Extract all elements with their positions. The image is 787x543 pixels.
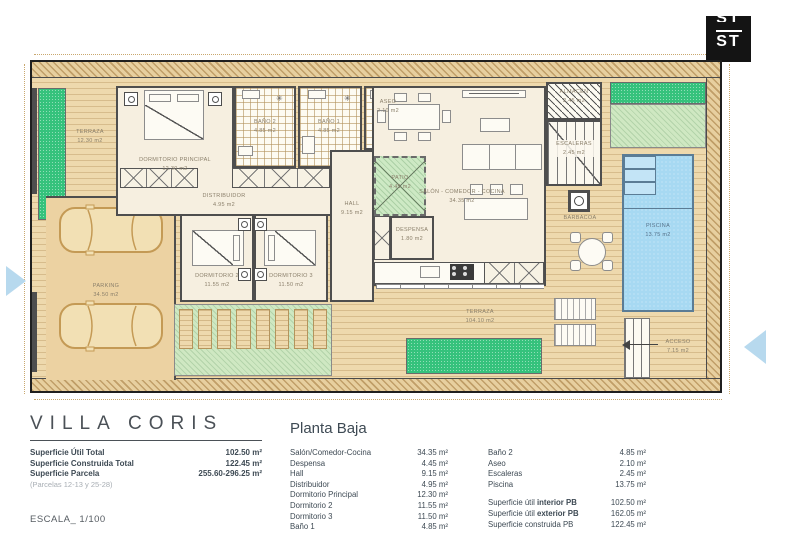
sink-icon <box>242 90 260 99</box>
room-name: PARKING <box>93 283 119 289</box>
room-label-piscina: PISCINA 13.75 m2 <box>645 222 670 239</box>
legend-row: Dormitorio 211.55 m² <box>290 501 448 512</box>
legend-value: 4.85 m² <box>620 448 646 459</box>
room-area: 34.50 m2 <box>93 292 118 298</box>
room-name: TERRAZA <box>76 129 104 135</box>
pillow <box>233 235 240 261</box>
room-name: BARBACOA <box>564 215 597 221</box>
pillow <box>177 94 199 102</box>
chair <box>418 132 431 141</box>
legend-value: 11.50 m² <box>418 512 448 523</box>
room-label-acceso: ACCESO 7.15 m2 <box>665 338 690 355</box>
room-label-salon: SALÓN - COMEDOR - COCINA 34.35 m2 <box>419 188 505 205</box>
title-block: VILLA CORIS Superficie Útil Total 102.50… <box>30 413 262 490</box>
legend-total-value: 102.50 m² <box>611 498 646 509</box>
parcelas-note: (Parcelas 12-13 y 25-28) <box>30 480 262 491</box>
room-hall <box>330 150 374 302</box>
chair <box>602 260 613 271</box>
bed-icon <box>192 230 244 266</box>
pool-line <box>624 208 692 209</box>
legend-row: Distribuidor4.95 m² <box>290 480 448 491</box>
legend-label: Escaleras <box>488 469 522 480</box>
entrance-arrow-right-icon <box>6 266 26 296</box>
room-name: TERRAZA <box>466 309 494 315</box>
legend-column-2: Baño 24.85 m² Aseo2.10 m² Escaleras2.45 … <box>488 448 646 530</box>
wall-segment <box>32 292 37 372</box>
room-label-barbacoa: BARBACOA <box>564 214 597 223</box>
summary-row: Superficie Parcela 255.60-296.25 m² <box>30 469 262 480</box>
room-name: ALMACÉN <box>560 89 589 95</box>
room-area: 1.80 m2 <box>401 236 423 242</box>
summary-row: Superficie Construida Total 122.45 m² <box>30 459 262 470</box>
pergola-slat <box>313 309 327 349</box>
room-name: DORMITORIO 3 <box>269 273 313 279</box>
stool <box>510 184 523 195</box>
room-area: 2.45 m2 <box>563 98 585 104</box>
legend-row: Despensa4.45 m² <box>290 459 448 470</box>
room-label-almacen: ALMACÉN 2.45 m2 <box>560 88 589 105</box>
room-area: 12.30 m2 <box>77 138 102 144</box>
logo-bottom-text: ST <box>716 33 740 51</box>
logo-top-text: ST <box>716 9 740 22</box>
sofa-seam <box>515 145 516 169</box>
site-border-top <box>32 62 720 78</box>
chair <box>570 232 581 243</box>
room-label-escaleras: ESCALERAS 2.45 m2 <box>554 140 594 157</box>
pergola-garden <box>174 304 332 376</box>
pillow <box>268 235 275 261</box>
pool-steps <box>624 156 656 169</box>
room-area: 104.10 m2 <box>466 318 495 324</box>
shower-icon: ✳ <box>344 94 351 103</box>
legend-value: 12.30 m² <box>417 490 448 501</box>
pergola-slat <box>217 309 231 349</box>
room-label-terraza-main: TERRAZA 104.10 m2 <box>466 308 495 325</box>
dimension-line-right <box>729 64 730 394</box>
room-label-dormitorio2: DORMITORIO 2 11.55 m2 <box>195 272 239 289</box>
garden-strip-south <box>406 338 542 374</box>
legend-total-value: 162.05 m² <box>611 509 646 520</box>
legend-label: Distribuidor <box>290 480 329 491</box>
st-logo: ST ST <box>706 16 751 62</box>
toilet-icon <box>302 136 315 154</box>
legend-row: Escaleras2.45 m² <box>488 469 646 480</box>
summary-value: 102.50 m² <box>226 448 262 459</box>
legend-label: Hall <box>290 469 303 480</box>
floor-plan: TERRAZA 12.30 m2 PARKING 34.50 m2 <box>30 60 722 393</box>
summary-row: Superficie Útil Total 102.50 m² <box>30 448 262 459</box>
pergola-slat <box>179 309 193 349</box>
legend-row: Piscina13.75 m² <box>488 480 646 491</box>
legend-label: Baño 1 <box>290 522 315 533</box>
section-marker <box>238 218 251 231</box>
chair <box>394 132 407 141</box>
page: ST ST TERRAZA 12.30 m2 <box>0 0 787 543</box>
garden-light-ne <box>610 104 706 148</box>
room-name: DESPENSA <box>396 227 428 233</box>
wardrobe <box>232 168 330 188</box>
room-name: ACCESO <box>665 339 690 345</box>
bed-fold <box>145 105 203 139</box>
legend-total-value: 122.45 m² <box>611 520 646 531</box>
pergola-slat <box>275 309 289 349</box>
room-label-hall: HALL 9.15 m2 <box>341 200 363 217</box>
room-name: DORMITORIO 2 <box>195 273 239 279</box>
wall-segment <box>32 88 37 194</box>
room-label-bano1: BAÑO 1 4.85 m2 <box>318 118 340 135</box>
legend-value: 34.35 m² <box>417 448 448 459</box>
sofa-icon <box>462 144 542 170</box>
legend-label: Dormitorio Principal <box>290 490 358 501</box>
summary-label: Superficie Parcela <box>30 469 99 480</box>
stove-icon <box>450 264 474 280</box>
legend-total-label: Superficie construida PB <box>488 520 573 531</box>
wardrobe <box>374 216 390 260</box>
legend-total-row: Superficie útil interior PB 102.50 m² <box>488 498 646 509</box>
legend-value: 2.10 m² <box>620 459 646 470</box>
scale-text: ESCALA_ 1/100 <box>30 514 106 525</box>
pergola-slat <box>256 309 270 349</box>
legend-label: Dormitorio 2 <box>290 501 332 512</box>
room-area: 12.30 m2 <box>162 166 187 172</box>
room-name: BAÑO 1 <box>318 119 340 125</box>
legend-row: Baño 14.85 m² <box>290 522 448 533</box>
legend-value: 4.85 m² <box>422 522 448 533</box>
title-rule <box>30 440 262 441</box>
room-area: 13.75 m2 <box>645 232 670 238</box>
room-area: 4.95 m2 <box>213 202 235 208</box>
total-bold: interior PB <box>537 498 577 507</box>
summary-value: 255.60-296.25 m² <box>198 469 262 480</box>
room-area: 9.15 m2 <box>341 210 363 216</box>
section-marker <box>254 268 267 281</box>
pool-steps <box>624 169 656 182</box>
legend-row: Dormitorio Principal12.30 m² <box>290 490 448 501</box>
room-label-dormitorio-principal: DORMITORIO PRINCIPAL 12.30 m2 <box>139 156 211 173</box>
legend-row: Aseo2.10 m² <box>488 459 646 470</box>
room-label-parking: PARKING 34.50 m2 <box>93 282 119 299</box>
room-area: 7.15 m2 <box>667 348 689 354</box>
garden-strip-ne <box>610 82 706 104</box>
room-name: HALL <box>345 201 360 207</box>
glass-wall <box>376 284 544 289</box>
bed-fold <box>275 231 315 265</box>
lounger-icon <box>554 298 596 320</box>
barbecue-icon <box>568 190 590 212</box>
legend-label: Baño 2 <box>488 448 513 459</box>
legend-label: Aseo <box>488 459 506 470</box>
sofa-seam <box>489 145 490 169</box>
pillow <box>149 94 171 102</box>
legend-value: 13.75 m² <box>615 480 646 491</box>
legend-total-row: Superficie útil exterior PB 162.05 m² <box>488 509 646 520</box>
room-label-bano2: BAÑO 2 4.85 m2 <box>254 118 276 135</box>
pool-steps <box>624 182 656 195</box>
room-name: BAÑO 2 <box>254 119 276 125</box>
room-label-dormitorio3: DORMITORIO 3 11.50 m2 <box>269 272 313 289</box>
total-prefix: Superficie útil <box>488 498 537 507</box>
room-label-despensa: DESPENSA 1.80 m2 <box>396 226 428 243</box>
dimension-line-left <box>24 64 25 394</box>
car-icon <box>58 300 164 352</box>
bed-icon <box>144 90 204 140</box>
shower-icon: ✳ <box>276 94 283 103</box>
total-prefix: Superficie útil <box>488 509 537 518</box>
room-label-patio: PATIO 4.45 m2 <box>389 174 411 191</box>
legend-row: Salón/Comedor-Cocina34.35 m² <box>290 448 448 459</box>
legend-row: Hall9.15 m² <box>290 469 448 480</box>
pergola-slat <box>294 309 308 349</box>
room-label-distribuidor: DISTRIBUIDOR 4.95 m2 <box>202 192 245 209</box>
dimension-line-top <box>34 54 722 55</box>
legend-label: Dormitorio 3 <box>290 512 332 523</box>
toilet-icon <box>238 146 253 156</box>
round-table-icon <box>578 238 606 266</box>
chair <box>570 260 581 271</box>
room-label-terraza-nw: TERRAZA 12.30 m2 <box>76 128 104 145</box>
site-border-right <box>706 78 720 378</box>
room-name: ASEO <box>380 99 396 105</box>
pergola-slat <box>198 309 212 349</box>
room-area: 34.35 m2 <box>449 198 474 204</box>
legend-row: Baño 24.85 m² <box>488 448 646 459</box>
section-marker <box>124 92 138 106</box>
legend-total-row: Superficie construida PB 122.45 m² <box>488 520 646 531</box>
legend-row: Dormitorio 311.50 m² <box>290 512 448 523</box>
summary-label: Superficie Útil Total <box>30 448 105 459</box>
legend-value: 4.45 m² <box>422 459 448 470</box>
legend-label: Piscina <box>488 480 513 491</box>
section-marker <box>238 268 251 281</box>
entrance-arrow-left-icon <box>744 330 766 364</box>
bed-fold <box>193 231 233 265</box>
room-name: SALÓN - COMEDOR - COCINA <box>419 189 505 195</box>
room-area: 11.50 m2 <box>279 282 304 288</box>
legend-label: Despensa <box>290 459 325 470</box>
room-area: 4.85 m2 <box>254 128 276 134</box>
summary-value: 122.45 m² <box>226 459 262 470</box>
room-area: 4.45 m2 <box>389 184 411 190</box>
room-name: PISCINA <box>646 223 670 229</box>
section-marker <box>254 218 267 231</box>
room-area: 4.85 m2 <box>318 128 340 134</box>
chair <box>602 232 613 243</box>
dimension-line-bottom <box>34 399 722 400</box>
coffee-table-icon <box>480 118 510 132</box>
legend-value: 4.95 m² <box>422 480 448 491</box>
kitchen-sink-icon <box>420 266 440 278</box>
total-bold: exterior PB <box>537 509 579 518</box>
legend-value: 11.55 m² <box>418 501 448 512</box>
pergola-slat <box>236 309 250 349</box>
legend-total-label: Superficie útil exterior PB <box>488 509 579 520</box>
logo-divider <box>716 30 742 32</box>
room-area: 2.10 m2 <box>377 108 399 114</box>
lounger-icon <box>554 324 596 346</box>
legend-total-label: Superficie útil interior PB <box>488 498 577 509</box>
acceso-arrow-head <box>622 340 630 350</box>
legend-totals: Superficie útil interior PB 102.50 m² Su… <box>488 498 646 530</box>
tv-sideboard-icon <box>462 90 526 98</box>
room-name: DORMITORIO PRINCIPAL <box>139 157 211 163</box>
total-prefix: Superficie construida PB <box>488 520 573 529</box>
acceso-arrow-line <box>628 344 658 345</box>
project-title: VILLA CORIS <box>30 413 262 435</box>
legend-value: 2.45 m² <box>620 469 646 480</box>
bed-icon <box>264 230 316 266</box>
room-name: PATIO <box>391 175 408 181</box>
room-area: 11.55 m2 <box>205 282 230 288</box>
legend-value: 9.15 m² <box>422 469 448 480</box>
room-name: ESCALERAS <box>556 141 592 147</box>
room-label-aseo: ASEO 2.10 m2 <box>377 98 399 115</box>
room-area: 2.45 m2 <box>563 150 585 156</box>
chair <box>418 93 431 102</box>
legend-label: Salón/Comedor-Cocina <box>290 448 371 459</box>
legend-column-1: Salón/Comedor-Cocina34.35 m² Despensa4.4… <box>290 448 448 533</box>
chair <box>442 110 451 123</box>
room-name: DISTRIBUIDOR <box>202 193 245 199</box>
summary-label: Superficie Construida Total <box>30 459 134 470</box>
section-marker <box>208 92 222 106</box>
wardrobe <box>484 262 544 284</box>
sink-icon <box>308 90 326 99</box>
legend-heading: Planta Baja <box>290 420 367 437</box>
